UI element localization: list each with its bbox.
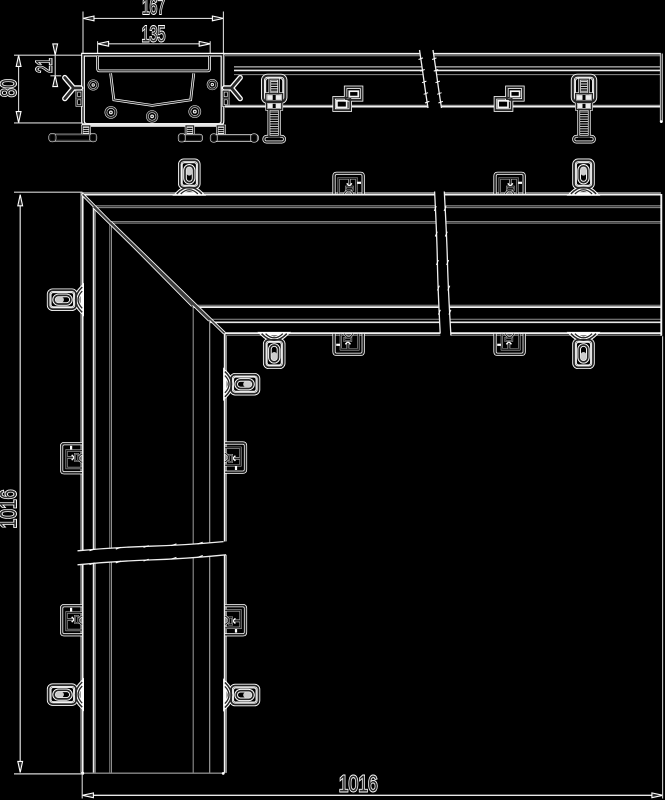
svg-text:80: 80 <box>0 79 21 97</box>
svg-text:135: 135 <box>142 21 166 46</box>
svg-text:21: 21 <box>32 58 57 73</box>
svg-text:1016: 1016 <box>0 490 21 529</box>
svg-text:1016: 1016 <box>339 771 378 797</box>
svg-text:167: 167 <box>142 0 165 19</box>
